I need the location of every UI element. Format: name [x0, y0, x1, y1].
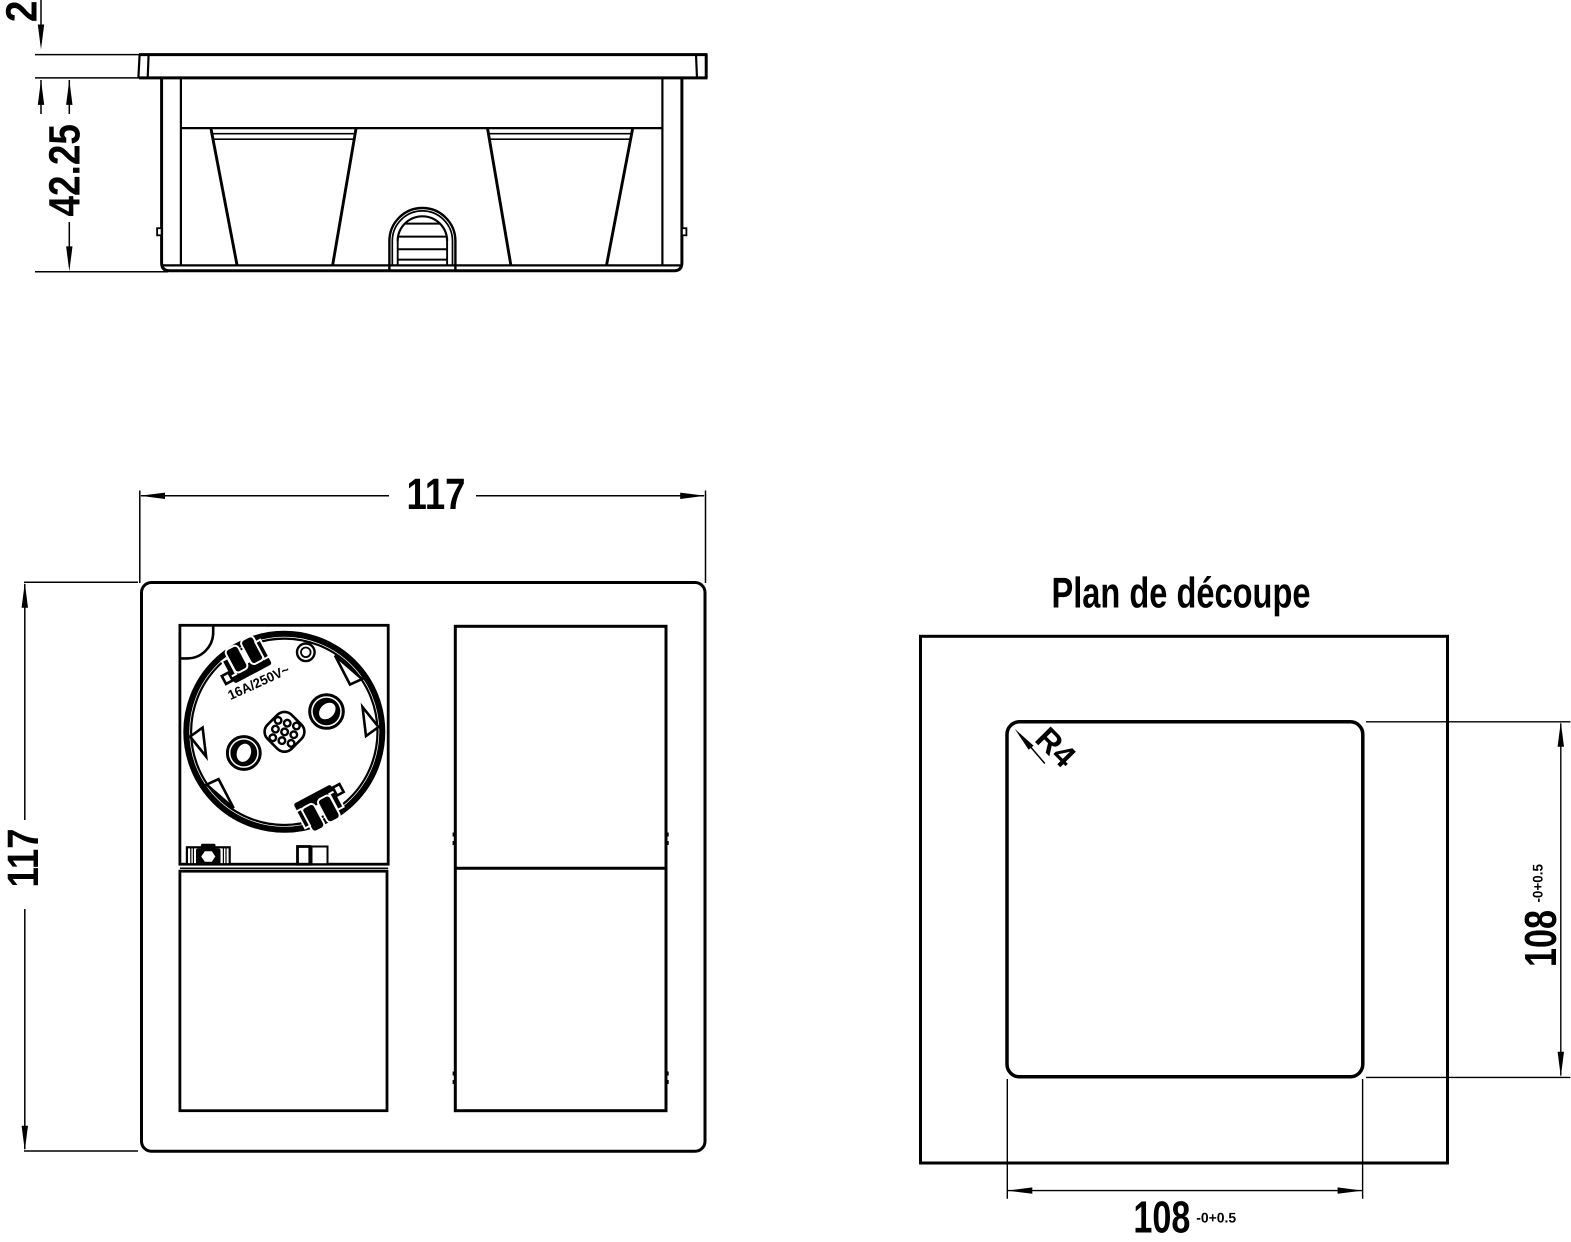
svg-text:117: 117: [0, 829, 48, 888]
svg-text:117: 117: [407, 470, 466, 519]
svg-text:Plan de découpe: Plan de découpe: [1052, 570, 1311, 618]
svg-text:-0+0.5: -0+0.5: [1530, 864, 1546, 903]
svg-text:108: 108: [1133, 1192, 1190, 1242]
svg-text:108: 108: [1515, 910, 1566, 967]
svg-text:2: 2: [0, 1, 47, 23]
svg-text:42.25: 42.25: [41, 124, 90, 217]
svg-text:-0+0.5: -0+0.5: [1196, 1209, 1236, 1225]
